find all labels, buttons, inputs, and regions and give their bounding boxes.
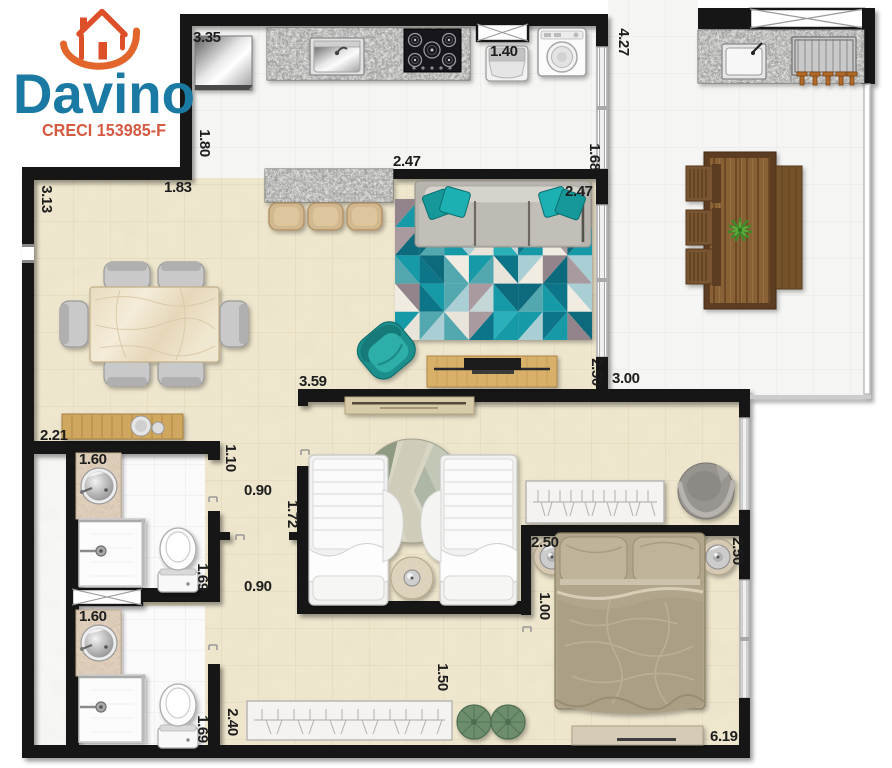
svg-text:1.83: 1.83 — [164, 179, 192, 196]
svg-text:6.19: 6.19 — [710, 728, 738, 745]
svg-text:4.27: 4.27 — [615, 28, 632, 56]
svg-text:3.13: 3.13 — [38, 185, 55, 213]
svg-text:Davino: Davino — [13, 62, 195, 125]
svg-text:3.35: 3.35 — [193, 29, 221, 46]
svg-text:1.00: 1.00 — [536, 592, 553, 620]
svg-text:1.50: 1.50 — [434, 663, 451, 691]
svg-text:2.40: 2.40 — [224, 708, 241, 736]
svg-text:1.60: 1.60 — [79, 451, 107, 468]
svg-text:2.47: 2.47 — [393, 153, 421, 170]
svg-text:2.21: 2.21 — [40, 427, 68, 444]
svg-text:3.59: 3.59 — [299, 373, 327, 390]
svg-text:2.50: 2.50 — [531, 534, 559, 551]
svg-text:1.69: 1.69 — [194, 563, 211, 591]
svg-text:1.68: 1.68 — [586, 143, 603, 171]
svg-text:2.47: 2.47 — [565, 183, 593, 200]
svg-text:1.80: 1.80 — [196, 129, 213, 157]
svg-text:1.69: 1.69 — [194, 715, 211, 743]
svg-text:1.60: 1.60 — [79, 608, 107, 625]
svg-text:0.90: 0.90 — [244, 482, 272, 499]
svg-text:2.50: 2.50 — [588, 358, 605, 386]
svg-text:1.40: 1.40 — [490, 43, 518, 60]
svg-text:CRECI 153985-F: CRECI 153985-F — [42, 120, 166, 140]
svg-text:1.72: 1.72 — [284, 500, 301, 528]
svg-text:1.10: 1.10 — [222, 444, 239, 472]
svg-text:0.90: 0.90 — [244, 578, 272, 595]
svg-text:3.00: 3.00 — [612, 370, 640, 387]
svg-text:2.50: 2.50 — [729, 537, 746, 565]
